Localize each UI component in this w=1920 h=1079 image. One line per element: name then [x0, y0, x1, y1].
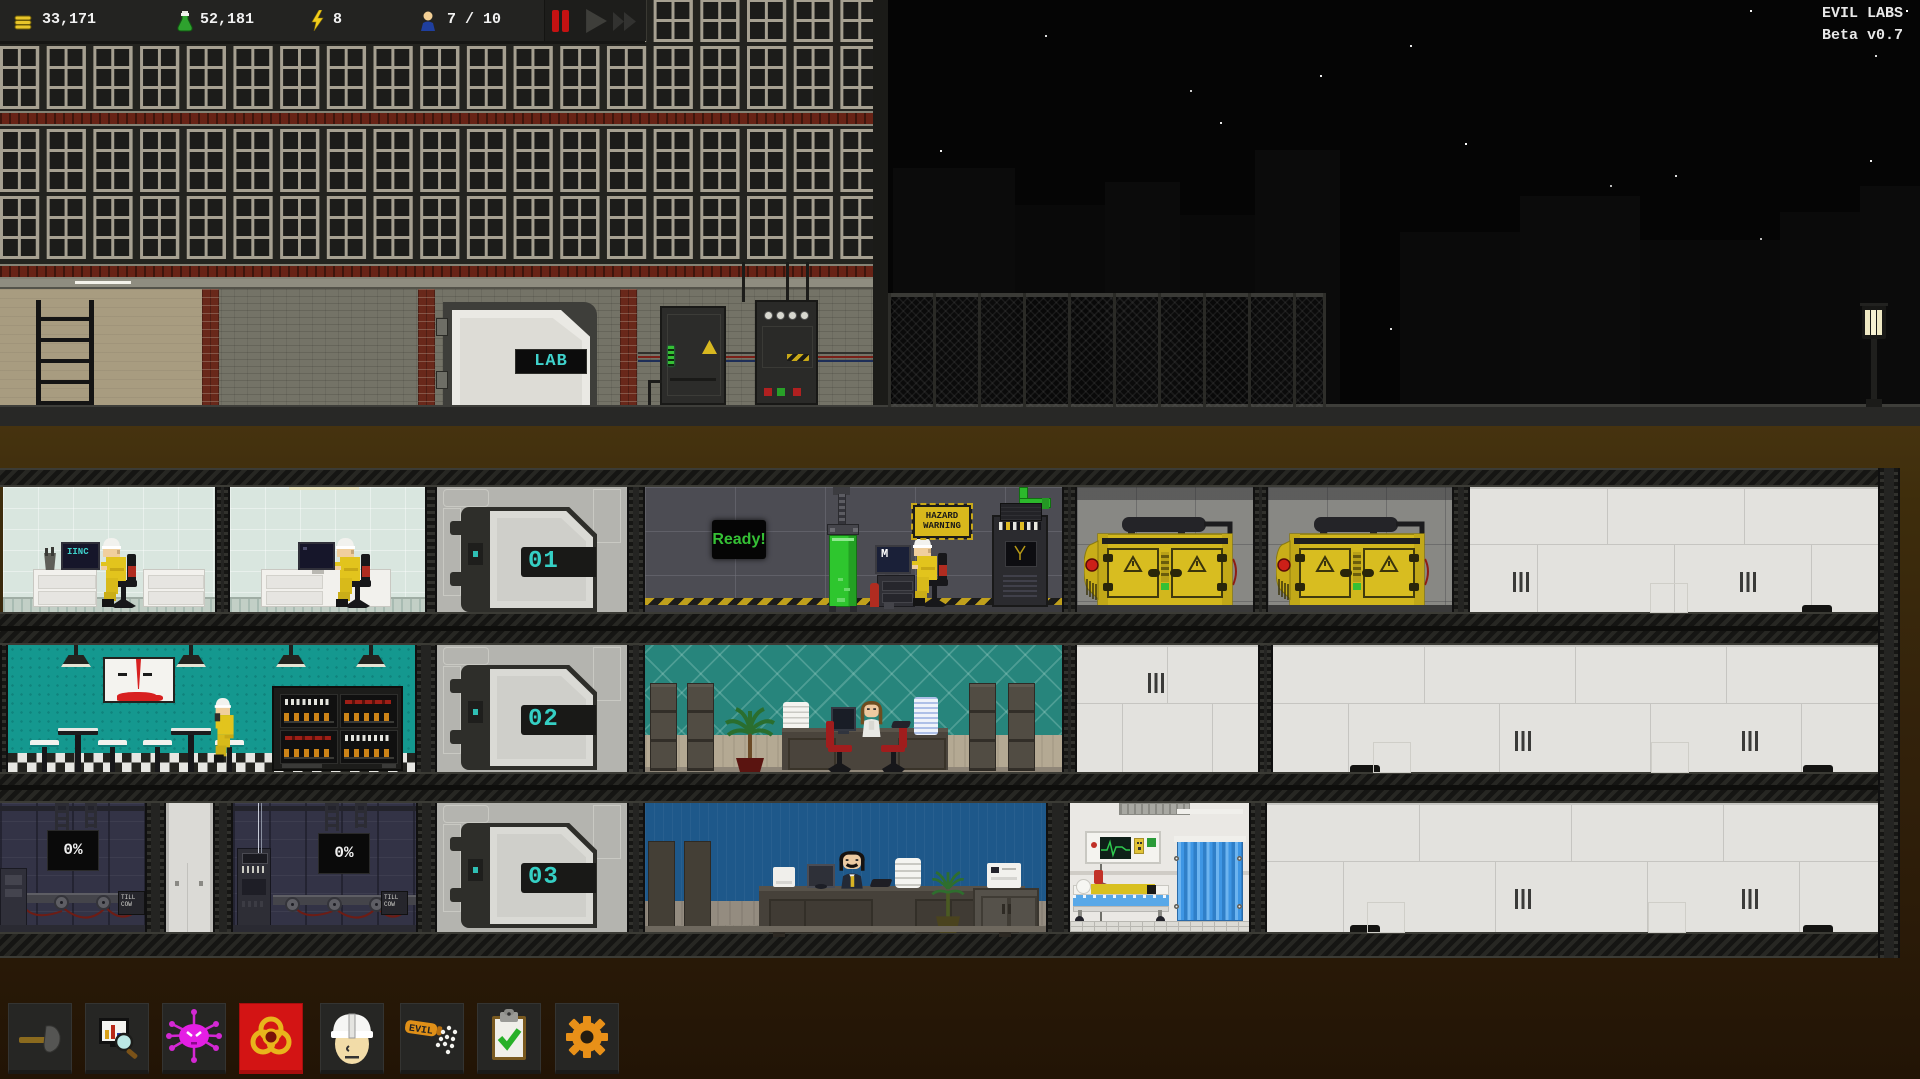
svg-text:EVIL: EVIL	[408, 1024, 433, 1038]
